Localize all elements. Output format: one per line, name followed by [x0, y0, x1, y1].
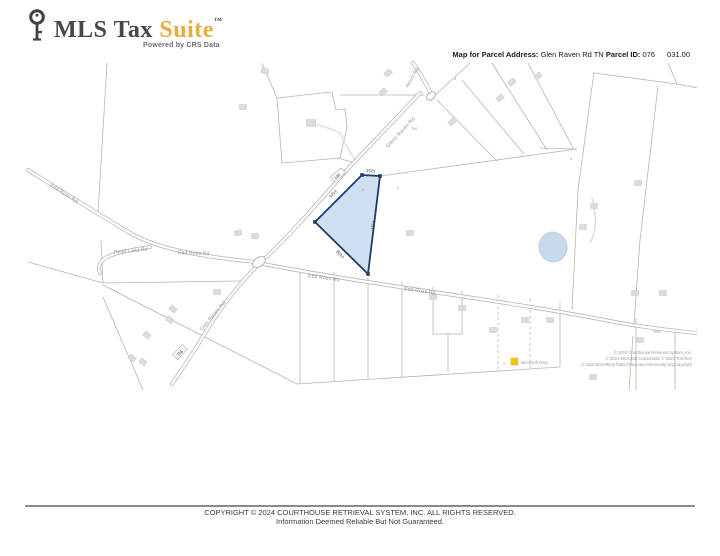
- brand-tagline: Powered by CRS Data: [54, 42, 222, 49]
- road-label-edd-ross-mid: Edd Ross Rd: [178, 250, 210, 257]
- road-glen-raven: [172, 93, 420, 384]
- lot-numbers: 2 3 754 4: [397, 77, 572, 190]
- bing-logo-icon: ≡: [503, 361, 506, 366]
- pond: [536, 229, 571, 265]
- footer-disclaimer: Information Deemed Reliable But Not Guar…: [0, 517, 720, 526]
- attribution-line2: © 2024 Microsoft Corporation © 2024 TomT…: [606, 356, 693, 361]
- app-logo: MLS Tax Suite™ Powered by CRS Data: [26, 8, 222, 49]
- bing-logo-text: Microsoft Bing: [521, 360, 548, 365]
- footer: COPYRIGHT © 2024 COURTHOUSE RETRIEVAL SY…: [0, 508, 720, 526]
- road-label-glenn-raven-upper: Glenn Raven Rd: [385, 116, 417, 149]
- parcel-lot-number: 1: [362, 188, 364, 192]
- subject-parcel-highlight: 152± 521± 151± 801± 1 140: [313, 168, 382, 276]
- address-label: Map for Parcel Address:: [452, 50, 538, 59]
- road-label-pearl-lietz: Pearl Lietz Rd: [114, 246, 149, 256]
- road-label-hinch: Hinch Rd: [405, 67, 421, 89]
- parcel-id-label: Parcel ID:: [606, 50, 641, 59]
- parcel-dim-top: 152±: [366, 168, 376, 174]
- road-edd-ross-east: [258, 263, 697, 333]
- bing-logo-square: [511, 358, 518, 365]
- footer-divider: [25, 505, 695, 507]
- map-attribution: ≡ Microsoft Bing © 2024 Courthouse Retri…: [503, 350, 693, 367]
- parcel-map-canvas: 152± 521± 151± 801± 1 140 756 2 3 754 4 …: [25, 60, 697, 400]
- attribution-link-openstreetmap[interactable]: © OpenStreetMap https://www.openstreetma…: [581, 362, 693, 367]
- route-marker-box: 756: [173, 344, 188, 359]
- trademark-symbol: ™: [214, 16, 222, 25]
- svg-text:754: 754: [411, 127, 417, 131]
- map-info-line: Map for Parcel Address: Glen Raven Rd TN…: [452, 50, 690, 59]
- road-label-glen-raven-lower: Glen Raven Rd: [199, 300, 227, 332]
- attribution-line1: © 2024 Courthouse Retrieval System, Inc.: [614, 350, 692, 355]
- brand-name: MLS Tax Suite™: [54, 8, 222, 43]
- parcel-id-parcel: 031.00: [667, 50, 690, 59]
- svg-text:2: 2: [397, 186, 399, 190]
- road-label-edd-ross-east2: Edd Ross Rd: [404, 286, 436, 296]
- key-icon: [26, 8, 50, 49]
- address-value: Glen Raven Rd TN: [541, 50, 604, 59]
- brand-accent: Suite: [159, 17, 214, 43]
- parcel-dim-right: 151±: [370, 220, 376, 230]
- parcel-id-map: 076: [643, 50, 656, 59]
- svg-text:4: 4: [570, 157, 572, 161]
- road-label-edd-ross-west: Edd Ross Rd: [49, 183, 79, 205]
- svg-text:3: 3: [454, 77, 456, 81]
- footer-copyright: COPYRIGHT © 2024 COURTHOUSE RETRIEVAL SY…: [0, 508, 720, 517]
